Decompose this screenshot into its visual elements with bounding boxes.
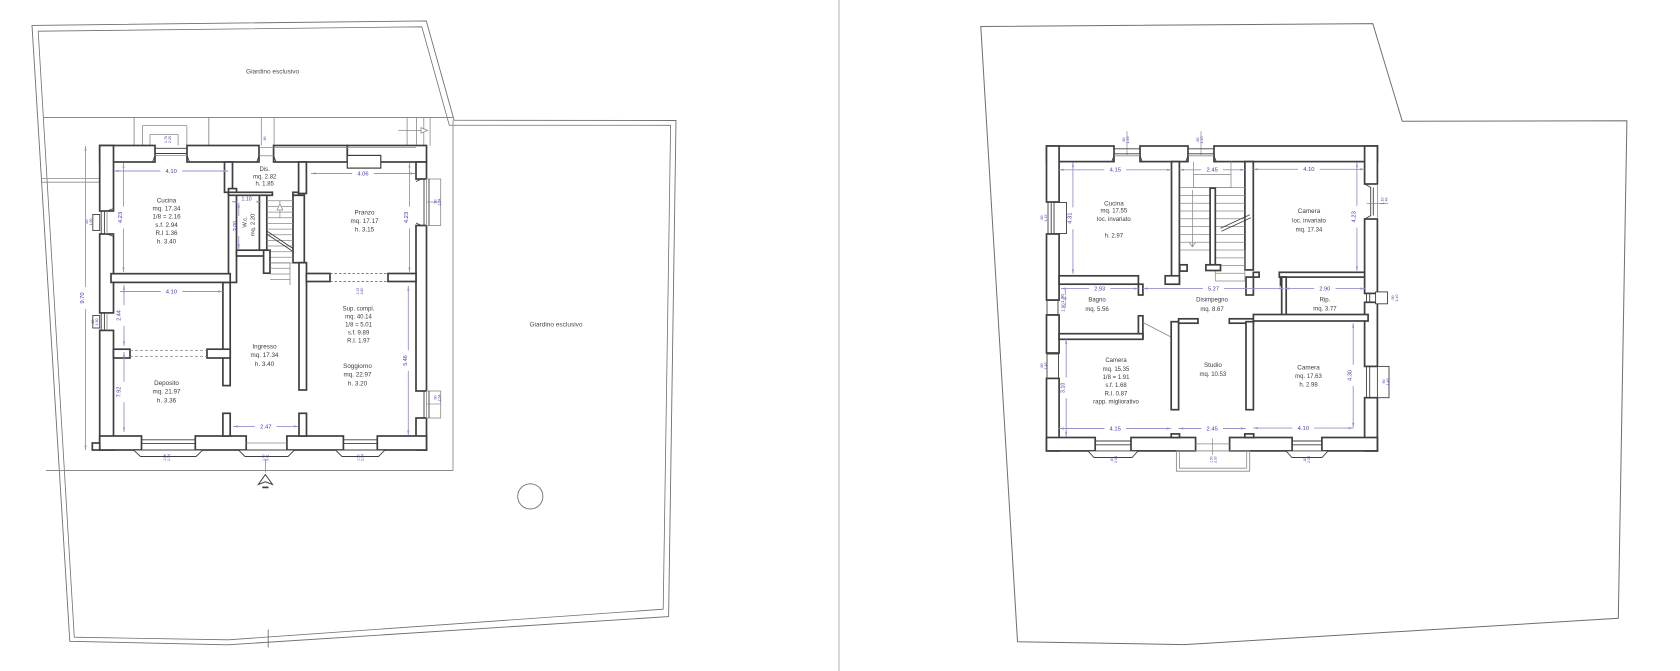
svg-text:Dis.: Dis. bbox=[260, 167, 271, 173]
svg-text:h. 3.36: h. 3.36 bbox=[157, 397, 177, 404]
svg-text:mq. 17.34: mq. 17.34 bbox=[1296, 228, 1323, 234]
svg-text:Camera: Camera bbox=[1298, 208, 1321, 215]
svg-text:4.23: 4.23 bbox=[404, 212, 410, 223]
svg-text:Studio: Studio bbox=[1204, 362, 1222, 369]
svg-text:1.45: 1.45 bbox=[1200, 137, 1204, 144]
svg-text:R.I. 1.97: R.I. 1.97 bbox=[347, 338, 370, 344]
svg-text:2.47: 2.47 bbox=[260, 424, 271, 430]
svg-text:4.10: 4.10 bbox=[1303, 167, 1314, 173]
svg-text:1.45: 1.45 bbox=[1044, 215, 1048, 222]
svg-text:5.27: 5.27 bbox=[1208, 287, 1219, 293]
svg-text:1/8 = 5.01: 1/8 = 5.01 bbox=[345, 323, 373, 329]
svg-text:1/8 = 1.91: 1/8 = 1.91 bbox=[1103, 375, 1131, 381]
svg-text:s.f. 2.94: s.f. 2.94 bbox=[155, 222, 178, 229]
svg-text:Rip.: Rip. bbox=[1320, 297, 1331, 303]
svg-text:4.10: 4.10 bbox=[166, 169, 177, 175]
svg-text:2.93: 2.93 bbox=[1094, 287, 1105, 293]
svg-text:Deposito: Deposito bbox=[154, 380, 179, 387]
svg-text:Cucina: Cucina bbox=[157, 197, 177, 204]
svg-text:mq. 40.14: mq. 40.14 bbox=[345, 315, 372, 321]
svg-text:2.34: 2.34 bbox=[167, 454, 171, 461]
svg-text:4.10: 4.10 bbox=[1298, 426, 1309, 432]
svg-text:2.54: 2.54 bbox=[438, 395, 442, 402]
svg-text:Sup. compl.: Sup. compl. bbox=[343, 306, 375, 312]
svg-text:W.c.: W.c. bbox=[243, 216, 249, 228]
svg-text:1.90: 1.90 bbox=[1061, 303, 1066, 312]
svg-text:R.I. 0.87: R.I. 0.87 bbox=[1105, 391, 1128, 397]
svg-text:Pranzo: Pranzo bbox=[355, 209, 375, 216]
svg-text:3.10: 3.10 bbox=[1061, 383, 1067, 394]
svg-text:2.90: 2.90 bbox=[1319, 287, 1330, 293]
svg-text:mq. 17.63: mq. 17.63 bbox=[1295, 374, 1322, 380]
svg-text:h. 3.15: h. 3.15 bbox=[355, 227, 375, 234]
svg-text:mq. 22.97: mq. 22.97 bbox=[343, 372, 372, 379]
svg-text:4.06: 4.06 bbox=[357, 171, 368, 177]
svg-text:mq. 10.53: mq. 10.53 bbox=[1200, 372, 1227, 378]
svg-text:Camera: Camera bbox=[1105, 358, 1127, 364]
svg-text:h. 2.97: h. 2.97 bbox=[1105, 234, 1124, 240]
svg-text:mq. 5.56: mq. 5.56 bbox=[1085, 307, 1109, 313]
svg-text:.90: .90 bbox=[263, 137, 267, 142]
svg-text:2.34: 2.34 bbox=[1114, 456, 1118, 463]
svg-text:9.70: 9.70 bbox=[80, 292, 86, 303]
svg-text:1.45: 1.45 bbox=[1386, 379, 1390, 386]
svg-text:mq. 2.20: mq. 2.20 bbox=[251, 214, 257, 237]
svg-text:mq. 21.97: mq. 21.97 bbox=[152, 389, 181, 396]
svg-text:h. 3.40: h. 3.40 bbox=[255, 361, 275, 368]
svg-text:loc. invariato: loc. invariato bbox=[1097, 217, 1131, 223]
svg-text:4.15: 4.15 bbox=[1110, 168, 1121, 174]
svg-text:Ingresso: Ingresso bbox=[252, 344, 277, 351]
svg-text:Cucina: Cucina bbox=[1104, 200, 1124, 207]
svg-text:2.34: 2.34 bbox=[361, 454, 365, 461]
svg-text:2.45: 2.45 bbox=[1207, 168, 1218, 174]
svg-text:4.15: 4.15 bbox=[1110, 426, 1121, 432]
svg-text:Bagno: Bagno bbox=[1088, 297, 1106, 303]
svg-text:2.30: 2.30 bbox=[1214, 456, 1218, 463]
svg-text:mq. 2.82: mq. 2.82 bbox=[253, 174, 277, 180]
svg-text:1.40: 1.40 bbox=[1395, 295, 1399, 302]
svg-text:1.50: 1.50 bbox=[95, 319, 99, 326]
svg-text:loc. invariato: loc. invariato bbox=[1292, 219, 1326, 225]
svg-text:mq. 3.77: mq. 3.77 bbox=[1313, 306, 1337, 312]
svg-text:mq. 15.35: mq. 15.35 bbox=[1103, 367, 1130, 373]
svg-text:1.45: 1.45 bbox=[1044, 363, 1048, 370]
svg-text:rapp. migliorativo: rapp. migliorativo bbox=[1093, 400, 1139, 406]
svg-text:2.45: 2.45 bbox=[1207, 426, 1218, 432]
svg-text:1.10: 1.10 bbox=[242, 197, 252, 203]
svg-text:h. 2.98: h. 2.98 bbox=[1299, 382, 1318, 388]
svg-text:R.I 1.36: R.I 1.36 bbox=[155, 230, 178, 237]
svg-text:5.46: 5.46 bbox=[403, 355, 409, 366]
svg-text:2.44: 2.44 bbox=[117, 310, 123, 321]
svg-text:2.34: 2.34 bbox=[1307, 456, 1311, 463]
svg-text:1.50: 1.50 bbox=[89, 219, 93, 226]
svg-text:1.46: 1.46 bbox=[1385, 198, 1389, 205]
svg-text:4.30: 4.30 bbox=[1348, 370, 1354, 381]
svg-text:Disimpegno: Disimpegno bbox=[1196, 297, 1228, 303]
svg-text:mq. 17.55: mq. 17.55 bbox=[1101, 209, 1128, 215]
svg-text:4.23: 4.23 bbox=[1351, 211, 1357, 222]
svg-text:mq. 8.67: mq. 8.67 bbox=[1200, 307, 1224, 313]
svg-text:Camera: Camera bbox=[1297, 364, 1320, 371]
svg-text:s.f. 9.89: s.f. 9.89 bbox=[348, 331, 370, 337]
svg-text:7.92: 7.92 bbox=[117, 387, 123, 398]
svg-text:2.80: 2.80 bbox=[360, 288, 364, 295]
svg-text:Soggiorno: Soggiorno bbox=[343, 363, 372, 370]
svg-text:mq. 17.34: mq. 17.34 bbox=[152, 206, 181, 213]
svg-text:mq. 17.17: mq. 17.17 bbox=[350, 218, 379, 225]
svg-text:2.54: 2.54 bbox=[438, 199, 442, 206]
svg-text:1.45: 1.45 bbox=[1126, 137, 1130, 144]
svg-text:4.10: 4.10 bbox=[166, 289, 177, 295]
svg-text:4.31: 4.31 bbox=[1067, 213, 1073, 224]
svg-text:2.20: 2.20 bbox=[168, 136, 172, 143]
svg-text:4.23: 4.23 bbox=[118, 212, 124, 223]
svg-text:s.f. 1.68: s.f. 1.68 bbox=[1105, 383, 1127, 389]
svg-text:Giardino esclusivo: Giardino esclusivo bbox=[529, 322, 582, 329]
svg-text:3.41: 3.41 bbox=[266, 454, 270, 461]
svg-text:Giardino esclusivo: Giardino esclusivo bbox=[246, 69, 299, 76]
svg-text:2.00: 2.00 bbox=[233, 221, 239, 231]
svg-text:1/8 = 2.16: 1/8 = 2.16 bbox=[152, 214, 181, 221]
svg-text:mq. 17.34: mq. 17.34 bbox=[250, 352, 279, 359]
svg-text:1.90: 1.90 bbox=[1060, 294, 1065, 303]
svg-text:h. 3.40: h. 3.40 bbox=[157, 238, 177, 245]
svg-text:h. 3.20: h. 3.20 bbox=[348, 380, 368, 387]
svg-text:h. 1.85: h. 1.85 bbox=[256, 182, 275, 188]
